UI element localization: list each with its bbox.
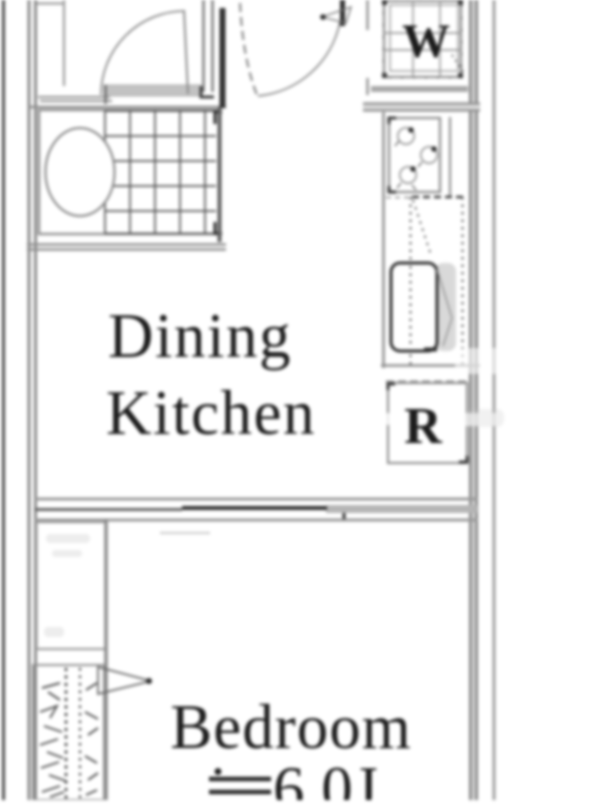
svg-text:W: W [402,15,450,68]
svg-text:R: R [404,398,443,455]
svg-text:Kitchen: Kitchen [106,378,316,448]
svg-text:6.0J: 6.0J [273,754,378,800]
svg-text:Dining: Dining [108,301,292,371]
svg-text:Bedroom: Bedroom [170,692,411,762]
